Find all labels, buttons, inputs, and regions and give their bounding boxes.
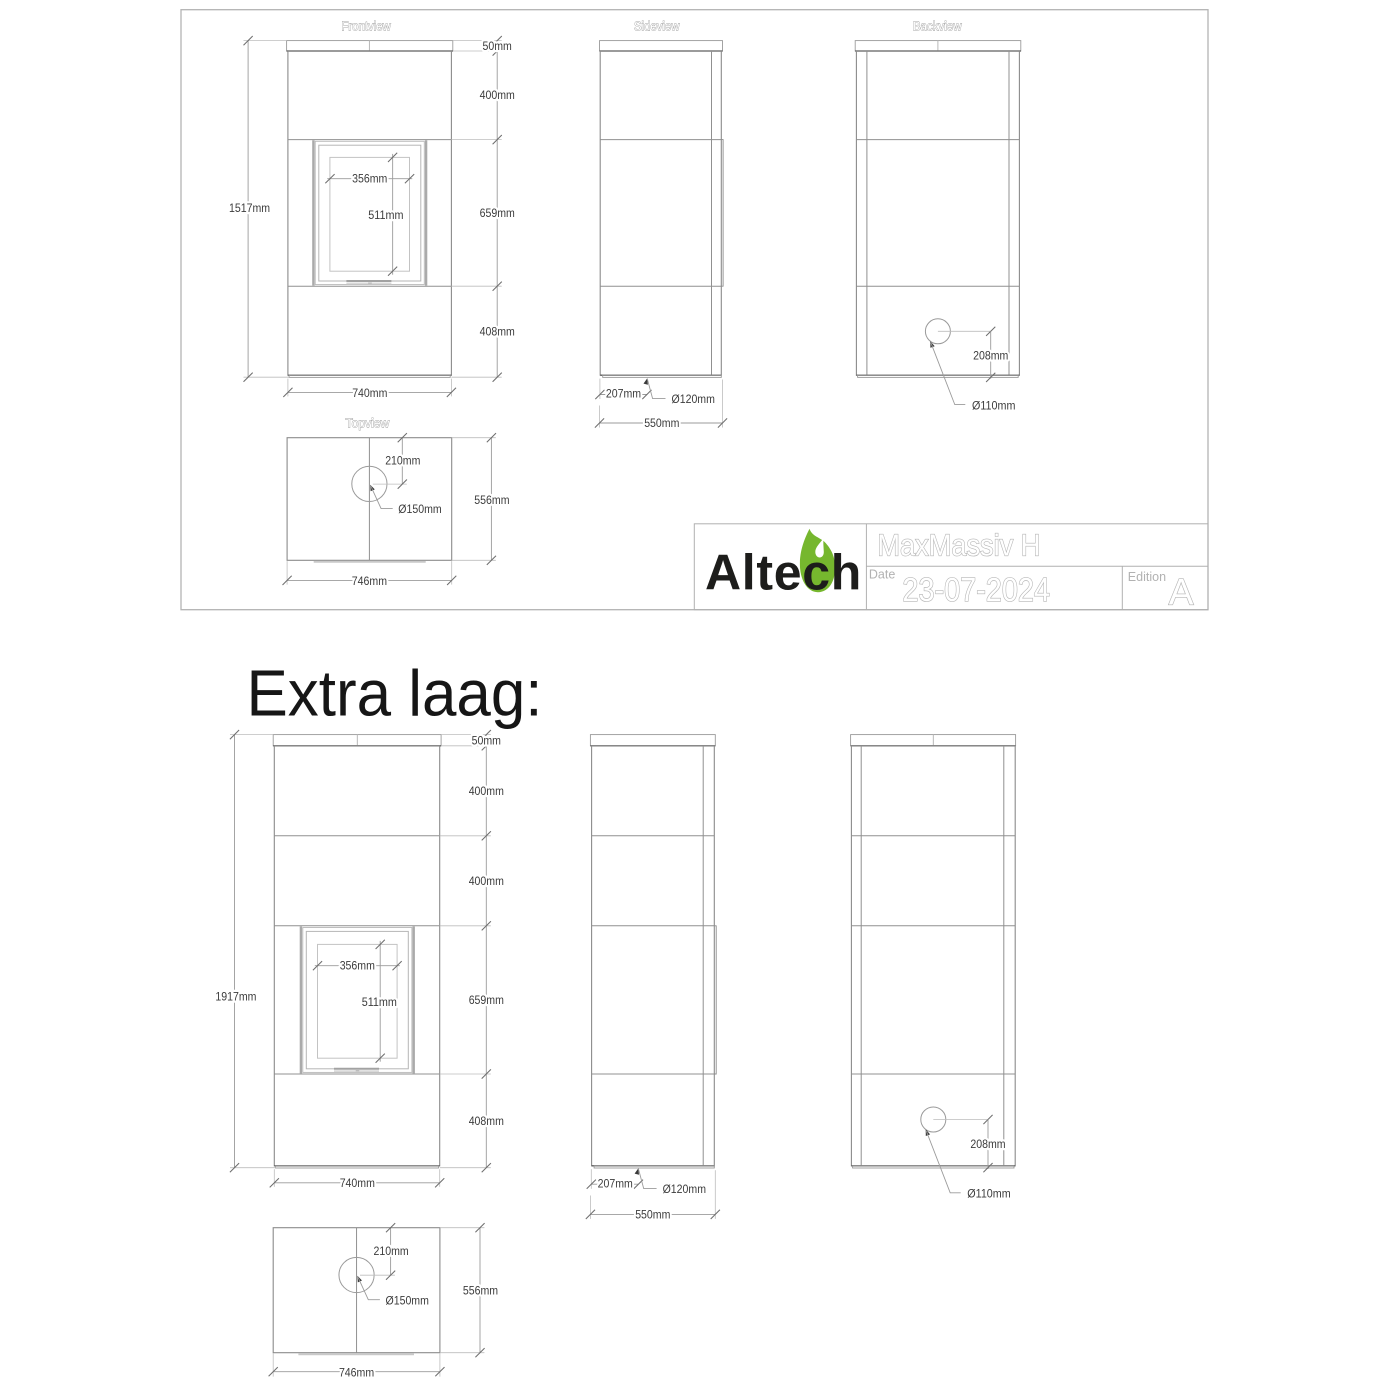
svg-text:Ø110mm: Ø110mm: [967, 1187, 1010, 1201]
svg-text:740mm: 740mm: [352, 386, 387, 400]
svg-text:740mm: 740mm: [340, 1176, 375, 1190]
svg-text:556mm: 556mm: [474, 493, 509, 507]
svg-text:Edition: Edition: [1128, 570, 1166, 584]
svg-text:659mm: 659mm: [469, 993, 504, 1007]
svg-text:511mm: 511mm: [362, 995, 397, 1009]
svg-text:400mm: 400mm: [480, 88, 515, 102]
svg-text:MaxMassiv H: MaxMassiv H: [877, 528, 1040, 563]
svg-text:746mm: 746mm: [352, 574, 387, 588]
svg-text:408mm: 408mm: [469, 1114, 504, 1128]
svg-text:746mm: 746mm: [339, 1365, 374, 1379]
svg-text:Ø110mm: Ø110mm: [972, 398, 1015, 412]
svg-text:207mm: 207mm: [606, 387, 641, 401]
svg-text:659mm: 659mm: [480, 206, 515, 220]
svg-text:400mm: 400mm: [469, 784, 504, 798]
svg-text:1917mm: 1917mm: [215, 990, 256, 1004]
svg-text:Ø150mm: Ø150mm: [386, 1293, 429, 1307]
svg-text:1517mm: 1517mm: [229, 201, 270, 215]
svg-text:Sideview: Sideview: [634, 19, 680, 34]
svg-text:Altech: Altech: [705, 545, 862, 601]
svg-text:Topview: Topview: [346, 415, 390, 430]
svg-text:356mm: 356mm: [352, 171, 387, 185]
svg-text:550mm: 550mm: [644, 416, 679, 430]
svg-text:511mm: 511mm: [368, 208, 403, 222]
svg-text:400mm: 400mm: [469, 874, 504, 888]
svg-text:356mm: 356mm: [340, 958, 375, 972]
svg-text:207mm: 207mm: [598, 1176, 633, 1190]
svg-text:Ø150mm: Ø150mm: [398, 502, 441, 516]
svg-text:Frontview: Frontview: [341, 19, 391, 34]
svg-text:210mm: 210mm: [385, 453, 420, 467]
svg-text:23-07-2024: 23-07-2024: [902, 571, 1050, 608]
svg-text:408mm: 408mm: [480, 325, 515, 339]
svg-text:50mm: 50mm: [483, 39, 512, 53]
svg-text:Ø120mm: Ø120mm: [672, 392, 715, 406]
svg-text:A: A: [1169, 572, 1194, 613]
svg-text:50mm: 50mm: [472, 733, 501, 747]
svg-text:Date: Date: [869, 568, 895, 582]
svg-text:208mm: 208mm: [973, 349, 1008, 363]
svg-text:Backview: Backview: [913, 19, 962, 34]
svg-text:208mm: 208mm: [970, 1137, 1005, 1151]
svg-text:556mm: 556mm: [463, 1283, 498, 1297]
svg-text:Ø120mm: Ø120mm: [663, 1182, 706, 1196]
svg-text:210mm: 210mm: [374, 1244, 409, 1258]
svg-text:Extra laag:: Extra laag:: [247, 657, 543, 730]
svg-text:550mm: 550mm: [635, 1207, 670, 1221]
